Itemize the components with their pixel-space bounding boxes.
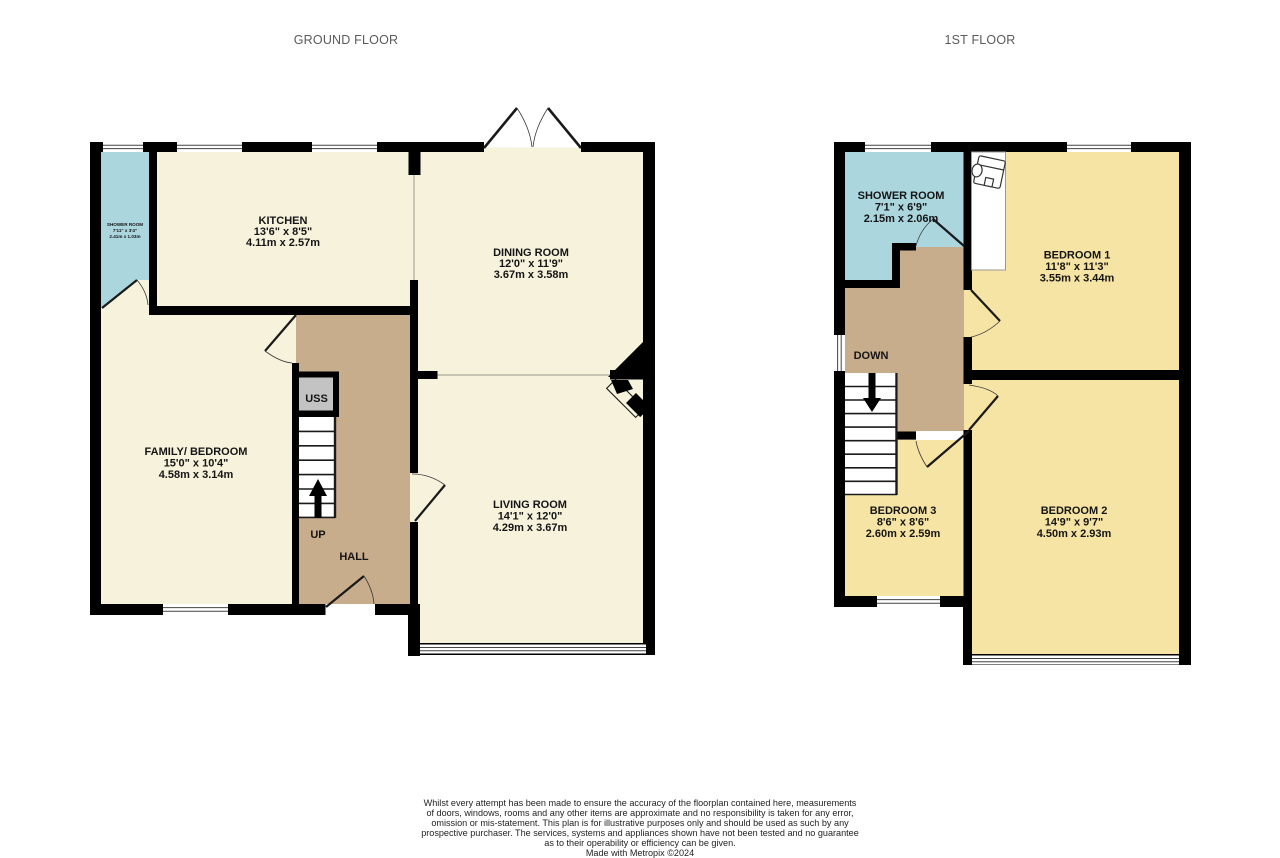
svg-text:13'6" x 8'5": 13'6" x 8'5" xyxy=(254,226,312,238)
svg-text:11'8" x 11'3": 11'8" x 11'3" xyxy=(1045,261,1108,273)
svg-text:BEDROOM 2: BEDROOM 2 xyxy=(1041,505,1108,517)
svg-text:15'0" x 10'4": 15'0" x 10'4" xyxy=(164,458,229,470)
svg-text:GROUND FLOOR: GROUND FLOOR xyxy=(294,33,399,47)
svg-text:3.55m x 3.44m: 3.55m x 3.44m xyxy=(1040,273,1115,285)
svg-text:4.50m x 2.93m: 4.50m x 2.93m xyxy=(1037,528,1112,540)
svg-text:4.58m x 3.14m: 4.58m x 3.14m xyxy=(159,469,234,481)
svg-text:1ST FLOOR: 1ST FLOOR xyxy=(944,33,1015,47)
svg-text:2.60m x 2.59m: 2.60m x 2.59m xyxy=(866,528,941,540)
svg-text:of doors, windows, rooms and a: of doors, windows, rooms and any other i… xyxy=(426,808,853,818)
svg-text:as to their operability or eff: as to their operability or efficiency ca… xyxy=(544,838,735,848)
svg-text:HALL: HALL xyxy=(339,551,369,563)
svg-text:SHOWER ROOM: SHOWER ROOM xyxy=(107,222,143,227)
svg-text:omission or mis-statement. Thi: omission or mis-statement. This plan is … xyxy=(431,818,849,828)
svg-text:7'11" x 3'4": 7'11" x 3'4" xyxy=(113,228,137,233)
svg-text:Made with Metropix ©2024: Made with Metropix ©2024 xyxy=(586,848,694,858)
svg-text:7'1" x 6'9": 7'1" x 6'9" xyxy=(875,202,927,214)
svg-text:4.29m x 3.67m: 4.29m x 3.67m xyxy=(493,522,568,534)
svg-text:FAMILY/ BEDROOM: FAMILY/ BEDROOM xyxy=(145,446,248,458)
svg-text:SHOWER ROOM: SHOWER ROOM xyxy=(858,190,945,202)
svg-text:UP: UP xyxy=(310,529,325,541)
svg-text:BEDROOM 3: BEDROOM 3 xyxy=(870,505,937,517)
svg-text:BEDROOM 1: BEDROOM 1 xyxy=(1044,250,1111,262)
svg-text:2.15m x 2.06m: 2.15m x 2.06m xyxy=(864,213,939,225)
svg-text:2.41m x 1.03m: 2.41m x 1.03m xyxy=(109,234,140,239)
svg-text:LIVING ROOM: LIVING ROOM xyxy=(493,499,567,511)
svg-text:8'6" x 8'6": 8'6" x 8'6" xyxy=(877,517,929,529)
svg-text:14'1" x 12'0": 14'1" x 12'0" xyxy=(498,511,563,523)
svg-text:prospective purchaser. The ser: prospective purchaser. The services, sys… xyxy=(421,828,859,838)
svg-text:USS: USS xyxy=(305,393,328,405)
svg-text:DOWN: DOWN xyxy=(854,350,889,362)
svg-text:4.11m x 2.57m: 4.11m x 2.57m xyxy=(246,237,320,249)
svg-text:3.67m x 3.58m: 3.67m x 3.58m xyxy=(494,269,569,281)
svg-text:Whilst every attempt has been: Whilst every attempt has been made to en… xyxy=(424,798,857,808)
svg-text:14'9" x 9'7": 14'9" x 9'7" xyxy=(1045,517,1103,529)
